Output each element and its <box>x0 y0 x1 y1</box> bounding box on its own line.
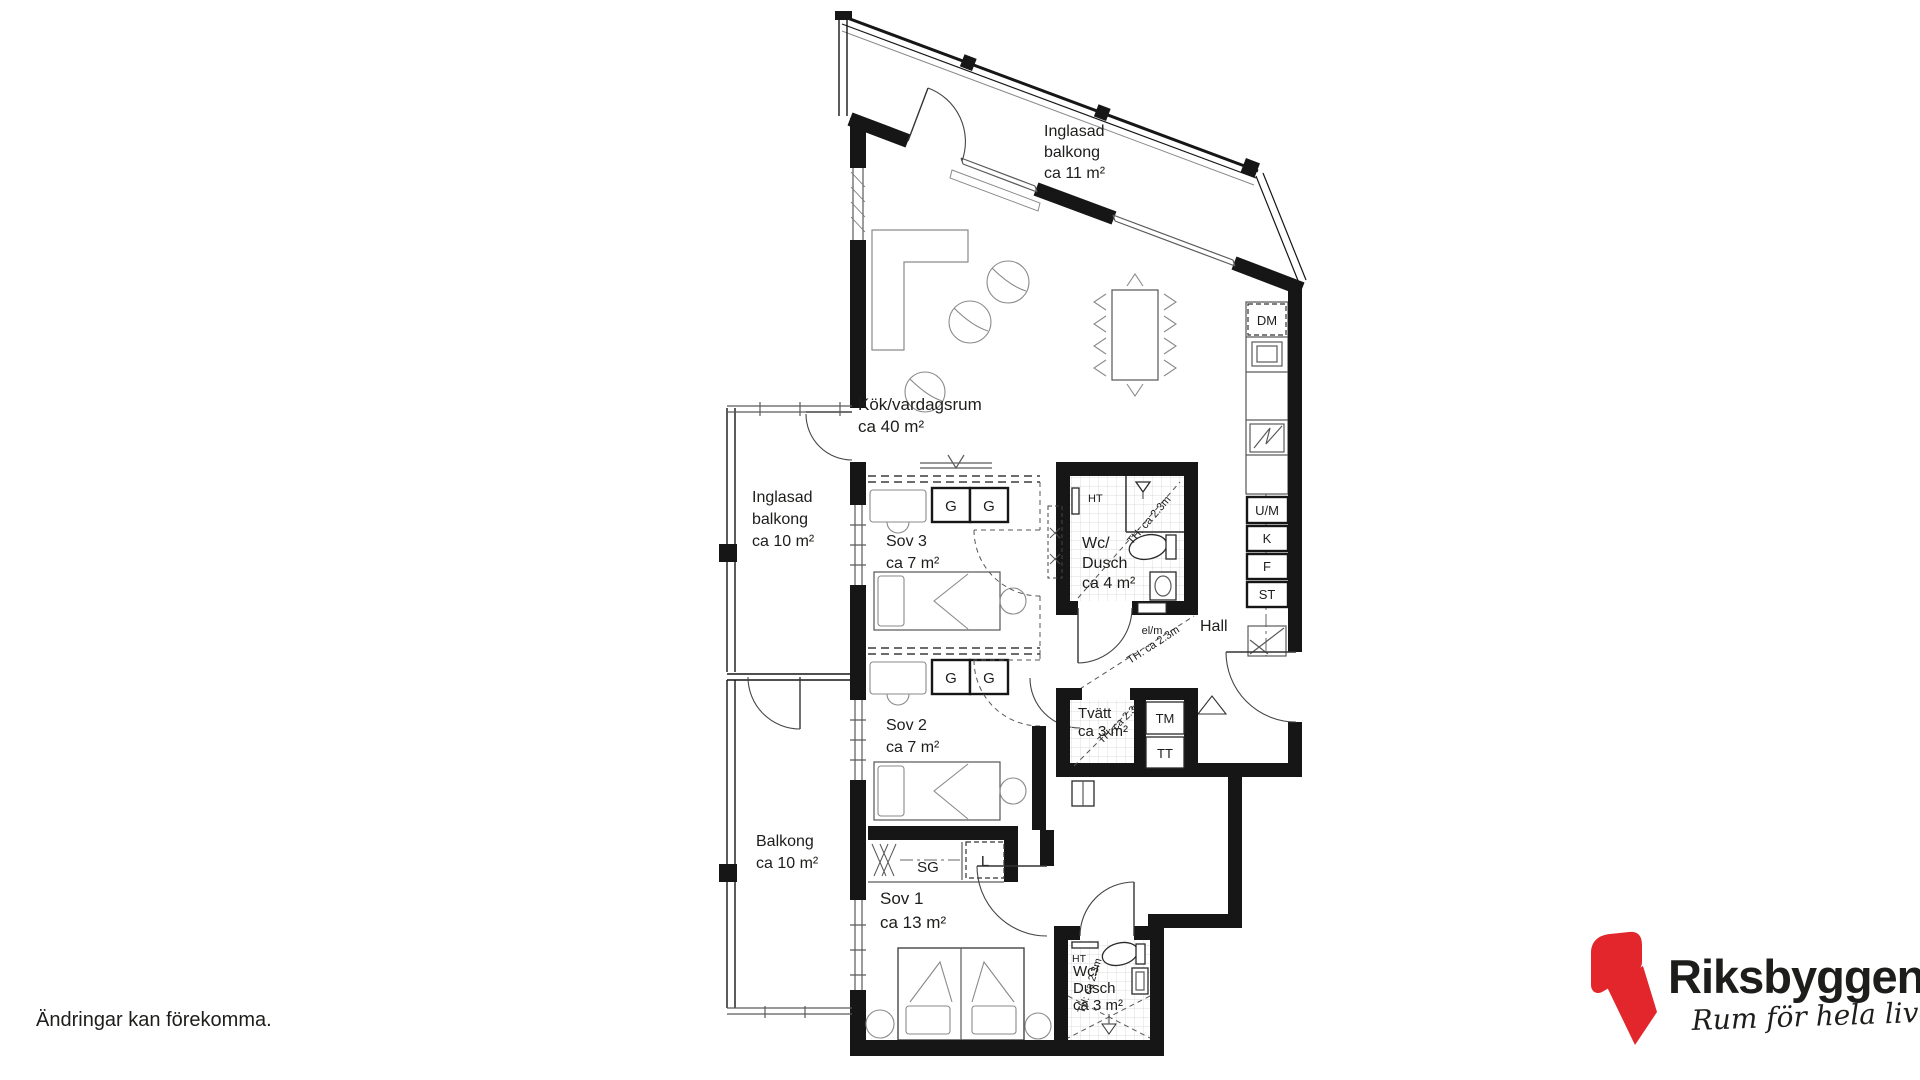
label-g-4: G <box>983 670 995 687</box>
label-k: K <box>1263 531 1272 546</box>
desk-icon <box>870 662 926 694</box>
towel-rail-icon <box>1072 942 1098 948</box>
label-kok-2: ca 40 m² <box>858 417 924 436</box>
label-sov3-2: ca 7 m² <box>886 555 940 572</box>
side-table-icon <box>866 1010 894 1038</box>
west-wall <box>806 118 866 1056</box>
desk-icon <box>870 490 926 522</box>
bathroom-3: HT Wc/ Dusch ca 3 m² TH: ca 2.3m <box>1054 882 1164 1056</box>
floorplan-page: Inglasad balkong ca 11 m² <box>0 0 1920 1080</box>
dining-table-icon <box>1112 290 1158 380</box>
hat-shelf-icon <box>1198 696 1226 714</box>
label-balkong-mid-1: Inglasad <box>752 489 813 506</box>
balconies-west: Inglasad balkong ca 10 m² Balkong ca 10 … <box>719 402 852 1018</box>
label-sov1-2: ca 13 m² <box>880 913 946 932</box>
bed-icon <box>874 572 1000 630</box>
bedroom-3: G G Sov 3 ca 7 m² <box>868 455 1040 654</box>
entry-door <box>1226 652 1296 722</box>
label-g-2: G <box>983 498 995 515</box>
label-tvatt-1: Tvätt <box>1078 705 1112 722</box>
bathroom-4: HT TH: ca 2.3m Wc/ Dusch ca 4 m² <box>1048 462 1198 615</box>
label-f: F <box>1263 559 1271 574</box>
side-table-icon <box>1025 1013 1051 1039</box>
label-wc4-2: Dusch <box>1082 555 1127 572</box>
label-balkong-mid-2: balkong <box>752 511 808 528</box>
label-balkong-low-1: Balkong <box>756 833 814 850</box>
label-sov3-1: Sov 3 <box>886 533 927 550</box>
riksbyggen-logo: Riksbyggen Rum för hela livet <box>1591 932 1920 1045</box>
label-dm: DM <box>1257 313 1277 328</box>
living-room: Kök/vardagsrum ca 40 m² <box>858 230 1176 436</box>
label-kok-1: Kök/vardagsrum <box>858 395 982 414</box>
label-sov1-1: Sov 1 <box>880 889 923 908</box>
label-balkong-top-2: balkong <box>1044 144 1100 161</box>
label-tt: TT <box>1157 746 1173 761</box>
floorplan-drawing: Inglasad balkong ca 11 m² <box>0 0 1920 1080</box>
side-table-icon <box>1000 588 1026 614</box>
label-st: ST <box>1259 587 1276 602</box>
label-wc4-1: Wc/ <box>1082 535 1110 552</box>
label-sov2-2: ca 7 m² <box>886 739 940 756</box>
meter-cabinet-icon <box>1138 603 1166 613</box>
disclaimer-text: Ändringar kan förekomma. <box>36 1009 272 1031</box>
sofa-icon <box>872 230 968 350</box>
label-wc4-3: ca 4 m² <box>1082 575 1136 592</box>
label-tm: TM <box>1156 711 1175 726</box>
label-l: L <box>981 853 989 870</box>
label-balkong-top-1: Inglasad <box>1044 123 1105 140</box>
kitchen-strip: DM U/M K F ST <box>1246 302 1288 656</box>
label-ht-1: HT <box>1088 493 1103 505</box>
label-balkong-mid-3: ca 10 m² <box>752 533 815 550</box>
logo-brand-text: Riksbyggen <box>1668 950 1920 1003</box>
towel-rail-icon <box>1072 488 1079 514</box>
perimeter-walls <box>850 1040 1164 1056</box>
bedroom-2: G G Sov 2 ca 7 m² <box>868 648 1046 830</box>
label-sov2-1: Sov 2 <box>886 717 927 734</box>
label-balkong-low-2: ca 10 m² <box>756 855 819 872</box>
label-balkong-top-3: ca 11 m² <box>1044 165 1106 182</box>
label-sg: SG <box>917 859 939 876</box>
bed-icon <box>874 762 1000 820</box>
label-g-1: G <box>945 498 957 515</box>
laundry: TM TT Tvätt ca 3 m² TH: ca 2.3m <box>1056 688 1198 806</box>
label-g-3: G <box>945 670 957 687</box>
side-table-icon <box>1000 778 1026 804</box>
label-um: U/M <box>1255 503 1279 518</box>
bedroom-1: SG L Sov 1 ca 13 m² <box>866 826 1054 1040</box>
label-hall: Hall <box>1200 618 1228 635</box>
